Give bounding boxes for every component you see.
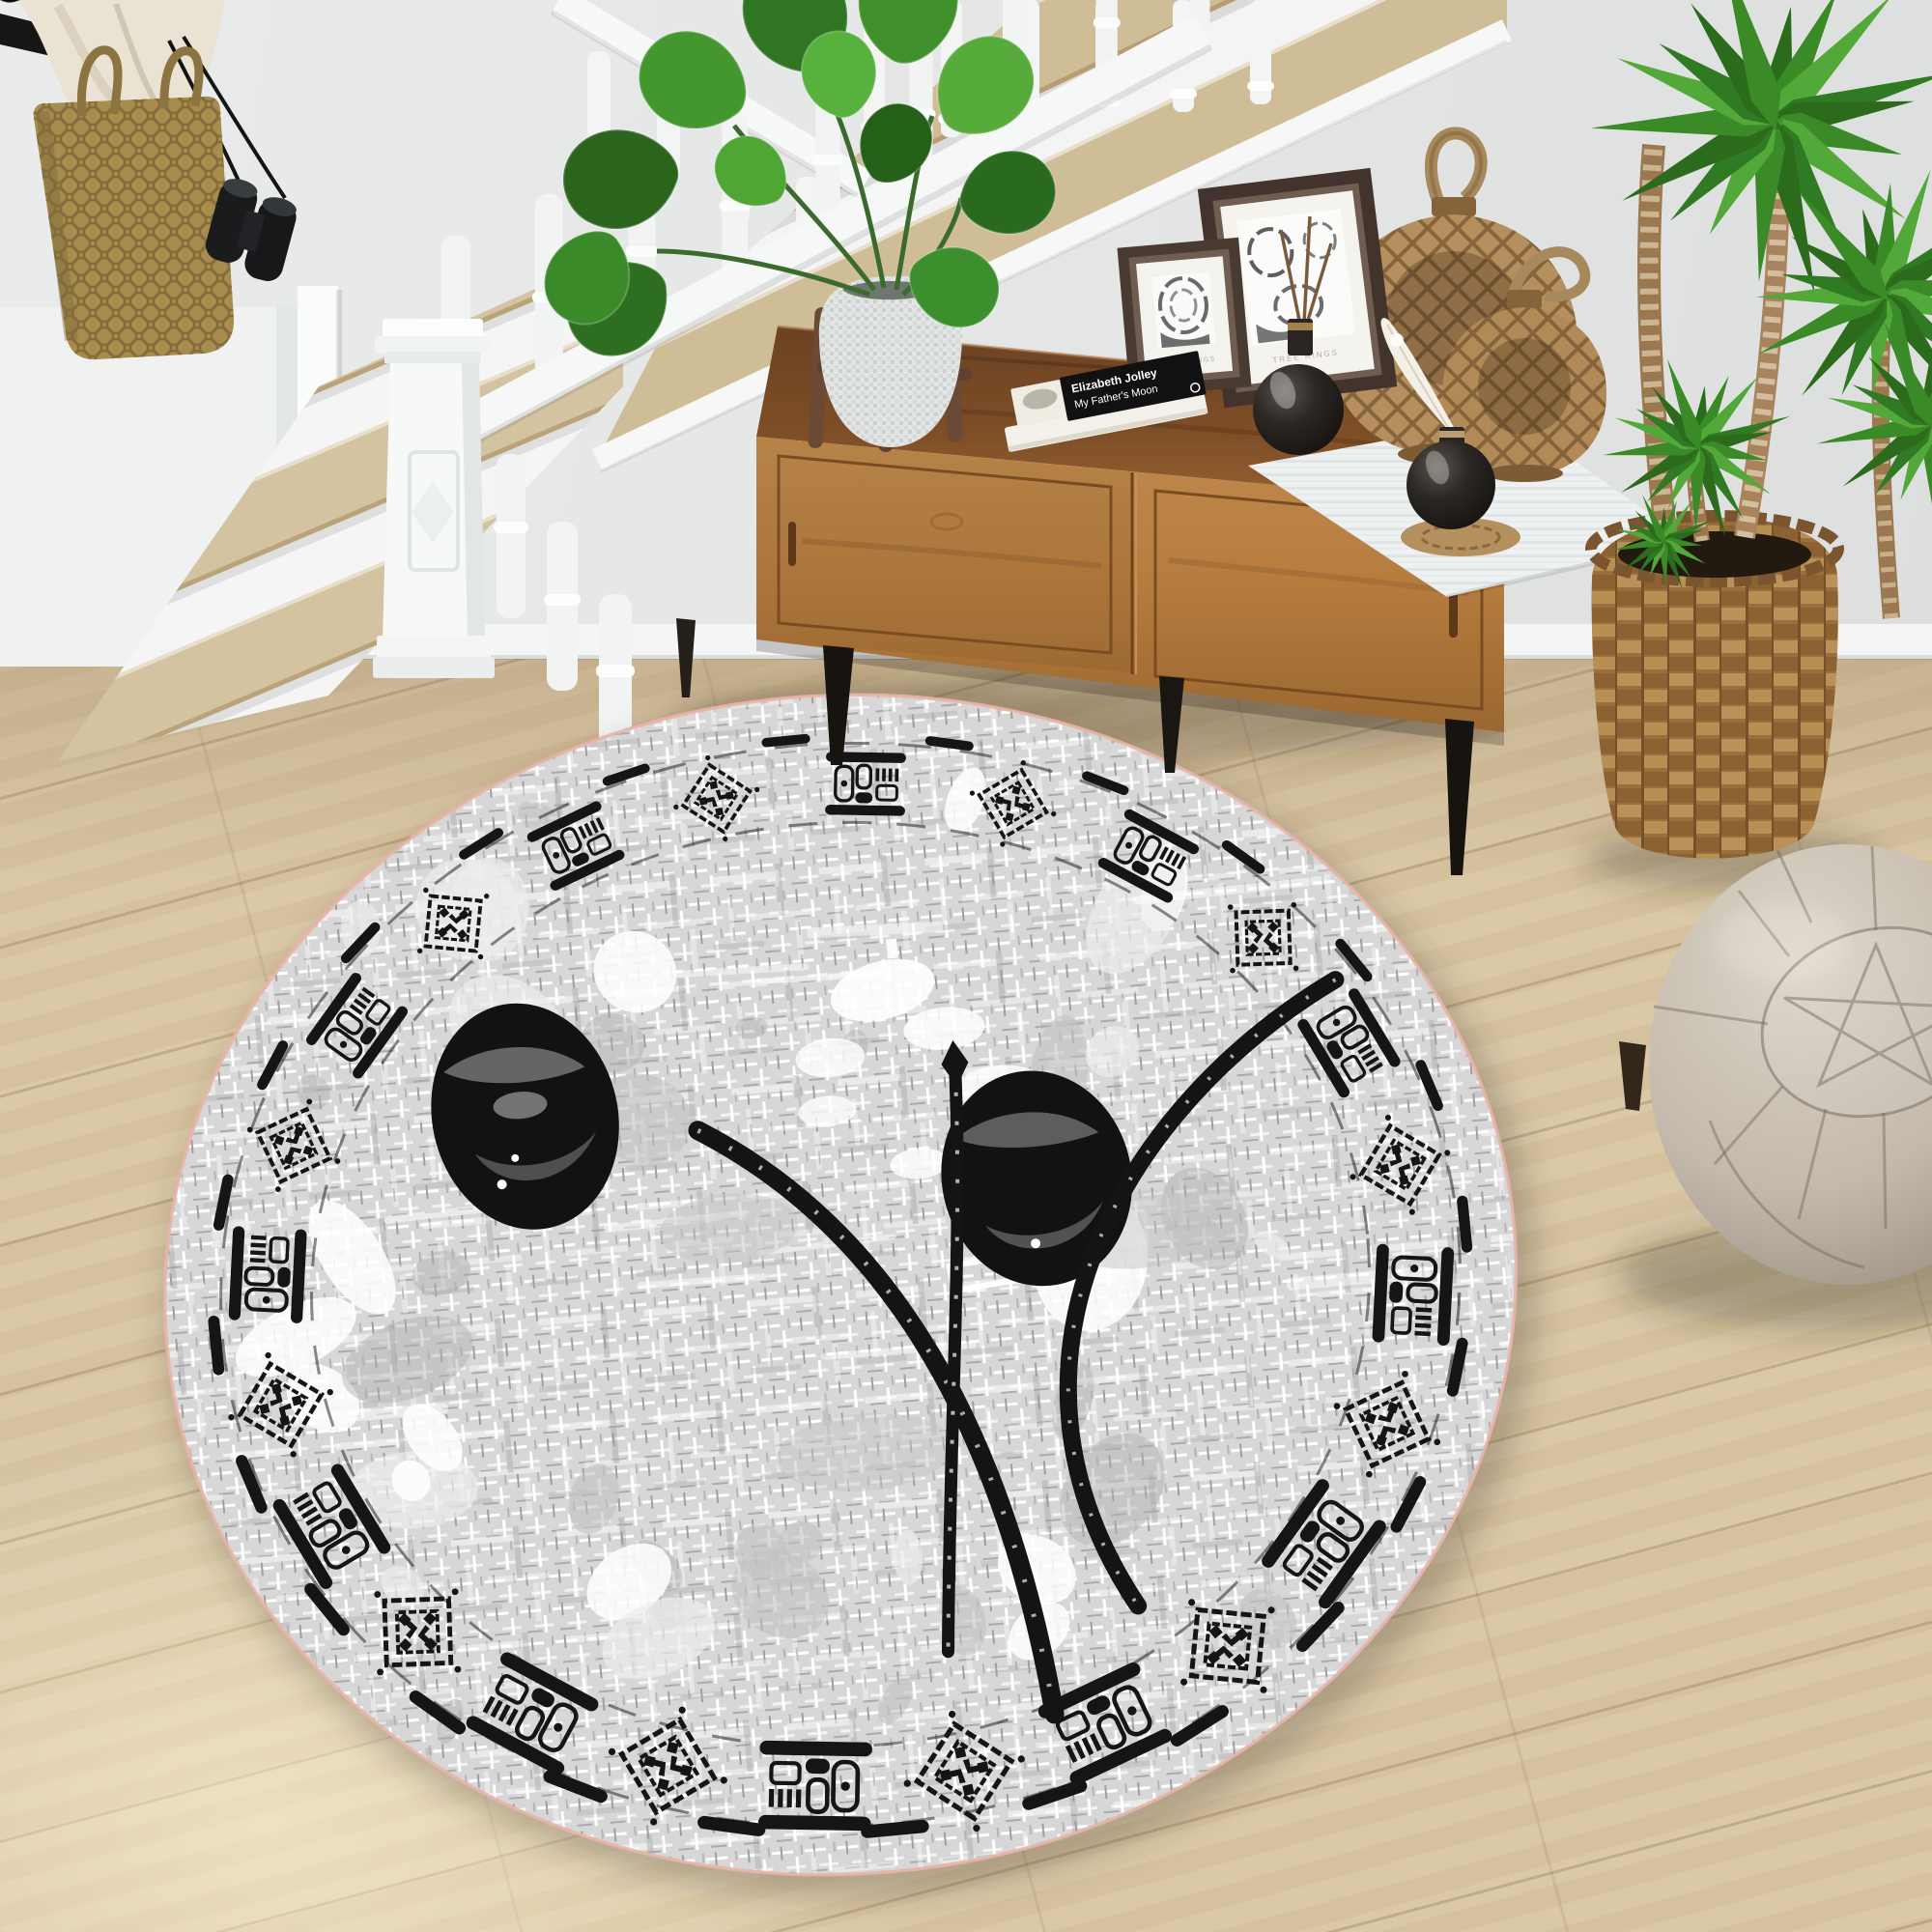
newel-post [373,319,495,678]
cabinet-leg [676,618,696,697]
pouf [1618,844,1932,1328]
cabinet-leg [1445,719,1474,875]
stool-leg [1619,1041,1646,1111]
coat-rack [0,0,302,359]
scene-artwork: TREE RINGS TREE RINGS [0,0,1932,1932]
interior-scene: TREE RINGS TREE RINGS [0,0,1932,1932]
yucca-plants [1569,0,1932,889]
rug [105,628,1577,1932]
door-handle-groove [788,522,796,566]
